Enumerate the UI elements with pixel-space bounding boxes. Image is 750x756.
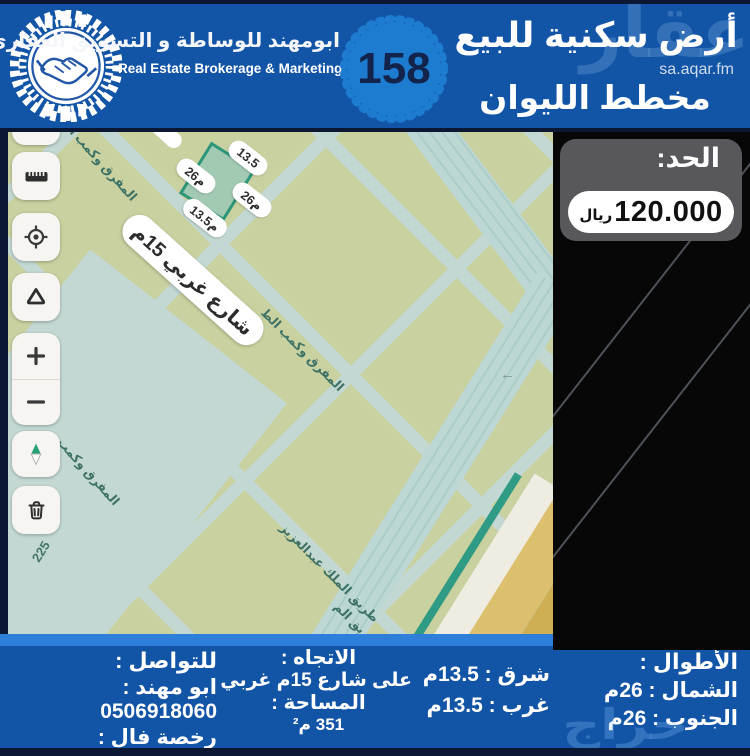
locate-button[interactable]: [12, 213, 60, 261]
direction-section: الاتجاه : على شارع 15م غربي المساحة : 35…: [225, 646, 412, 748]
contact-title: للتواصل :: [6, 648, 217, 674]
zoom-out-button[interactable]: [12, 379, 60, 425]
bottom-border: [0, 748, 750, 756]
ad-title-line2: مخطط الليوان: [450, 78, 740, 117]
brand-name-english: Real Estate Brokerage & Marketing: [118, 61, 340, 76]
contact-section: للتواصل : ابو مهند : 0506918060 رخصة فال…: [0, 646, 225, 748]
price-panel: الحد: ريال 120.000: [553, 132, 750, 650]
contact-agent-phone: ابو مهند : 0506918060: [6, 676, 217, 725]
minus-icon: [25, 391, 47, 413]
listing-number-badge: 158: [333, 10, 455, 128]
site-watermark: sa.aqar.fm: [659, 61, 734, 79]
lengths-title: الأطوال :: [562, 649, 738, 675]
price-currency: ريال: [579, 200, 612, 224]
compass-needle-icon: [23, 441, 49, 467]
ruler-icon: [23, 163, 50, 190]
direction-title: الاتجاه :: [225, 647, 412, 670]
plus-icon: [25, 345, 47, 367]
listing-number: 158: [333, 10, 455, 128]
delete-button[interactable]: [12, 486, 60, 534]
price-label: الحد:: [657, 143, 720, 174]
brand-name-arabic: ابومهند للوساطة و التسويق العقاري: [118, 28, 340, 53]
brand-logo: [10, 10, 122, 122]
draw-shape-button[interactable]: [12, 273, 60, 321]
length-west: غرب : 13.5م: [412, 694, 550, 718]
area-title: المساحة :: [225, 692, 412, 715]
measure-button[interactable]: [12, 152, 60, 200]
trash-icon: [23, 497, 50, 524]
direction-value: على شارع 15م غربي: [225, 670, 412, 692]
target-icon: [22, 223, 50, 251]
zoom-control: [12, 333, 60, 425]
handshake-buildings-icon: [10, 10, 122, 122]
polygon-icon: [22, 283, 50, 311]
ad-flyer: عقار ابومهند للوساطة و التسويق العقاري R…: [0, 0, 750, 756]
map-canvas[interactable]: 13.5 26م 26م 13.5م شارع غربي 15م المفرق …: [8, 132, 553, 634]
price-card: الحد: ريال 120.000: [560, 139, 742, 241]
one-way-arrow-icon: ←: [500, 366, 515, 383]
area-value: 351 م²: [225, 715, 412, 735]
ad-title-line1: أرض سكنية للبيع: [448, 16, 744, 56]
map-tool-button-partial[interactable]: [12, 132, 60, 145]
length-east: شرق : 13.5م: [412, 663, 550, 687]
header: عقار ابومهند للوساطة و التسويق العقاري R…: [0, 4, 750, 128]
price-pill: ريال 120.000: [568, 191, 734, 233]
price-amount: 120.000: [614, 196, 722, 229]
compass-button[interactable]: [12, 431, 60, 477]
zoom-in-button[interactable]: [12, 333, 60, 379]
haraj-watermark: حراج: [562, 700, 688, 749]
sides-section: شرق : 13.5م غرب : 13.5م: [412, 646, 562, 748]
